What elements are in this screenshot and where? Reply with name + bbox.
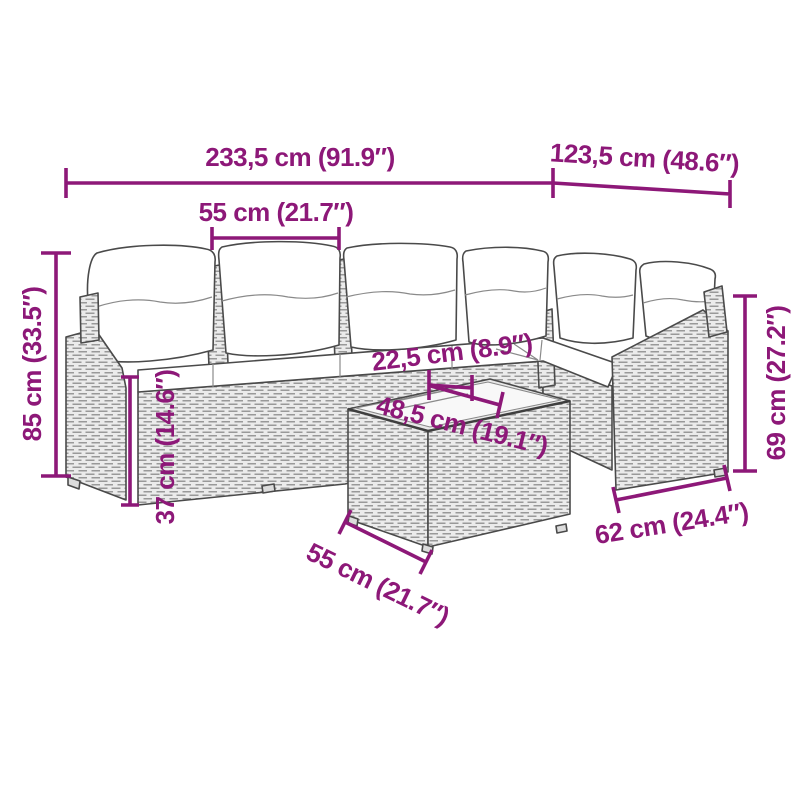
dimension-overall-height: 85 cm (33.5″) — [17, 253, 71, 476]
dimension-line — [553, 180, 730, 208]
dimension-corner-depth: 123,5 cm (48.6″) — [549, 137, 740, 208]
dimension-backrest-height: 69 cm (27.2″) — [733, 296, 791, 471]
dimension-seat-height: 37 cm (14.6″) — [121, 370, 180, 525]
dimension-backrest-height-label: 69 cm (27.2″) — [761, 306, 791, 461]
dimension-diagram-page: 233,5 cm (91.9″) 123,5 cm (48.6″) 55 cm … — [0, 0, 800, 800]
dimension-overall-height-label: 85 cm (33.5″) — [17, 287, 47, 442]
table-foot — [556, 524, 567, 533]
back-cushion — [554, 253, 637, 343]
right-armrest-post — [704, 286, 727, 337]
dimension-line — [66, 168, 553, 198]
dimension-diagram: 233,5 cm (91.9″) 123,5 cm (48.6″) 55 cm … — [0, 0, 800, 800]
dimension-seat-height-label: 37 cm (14.6″) — [150, 370, 180, 525]
back-cushion — [219, 242, 341, 356]
dimension-overall-width: 233,5 cm (91.9″) — [66, 142, 553, 198]
table-front-face — [348, 409, 428, 547]
dimension-seat-module-width-label: 55 cm (21.7″) — [199, 197, 354, 227]
sofa-foot — [262, 484, 275, 493]
dimension-corner-depth-label: 123,5 cm (48.6″) — [549, 137, 740, 179]
dimension-line — [733, 296, 757, 471]
back-cushion — [344, 243, 458, 350]
dimension-overall-width-label: 233,5 cm (91.9″) — [205, 142, 394, 172]
left-armrest-post — [80, 293, 99, 343]
